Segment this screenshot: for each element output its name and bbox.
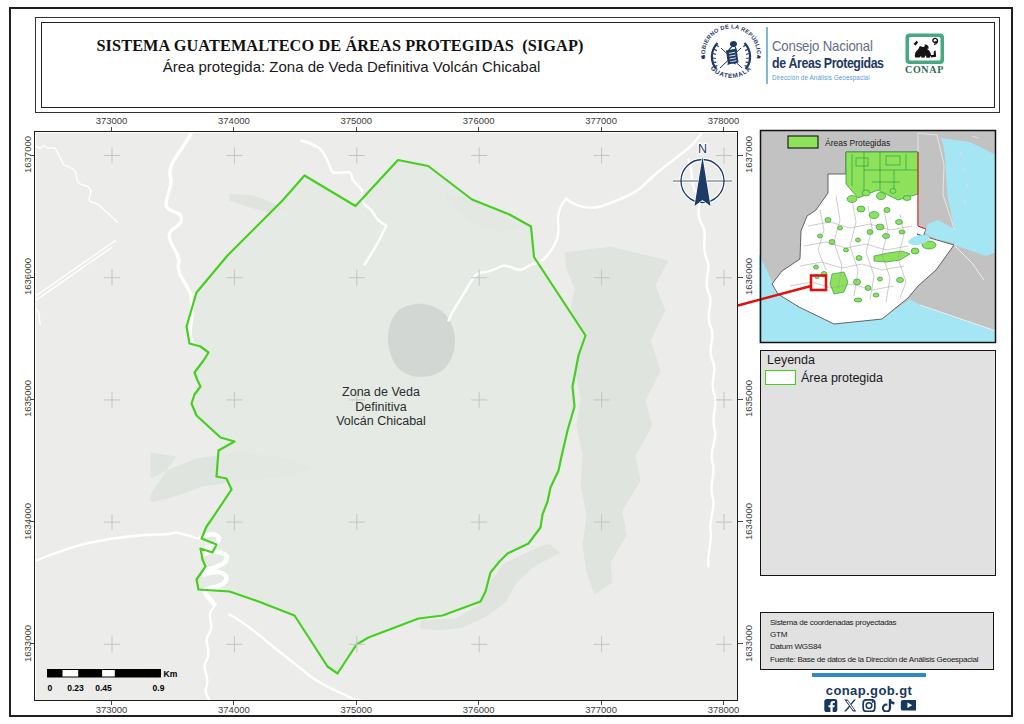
svg-text:CONAP: CONAP bbox=[905, 64, 944, 74]
svg-text:Áreas Protegidas: Áreas Protegidas bbox=[825, 138, 890, 148]
